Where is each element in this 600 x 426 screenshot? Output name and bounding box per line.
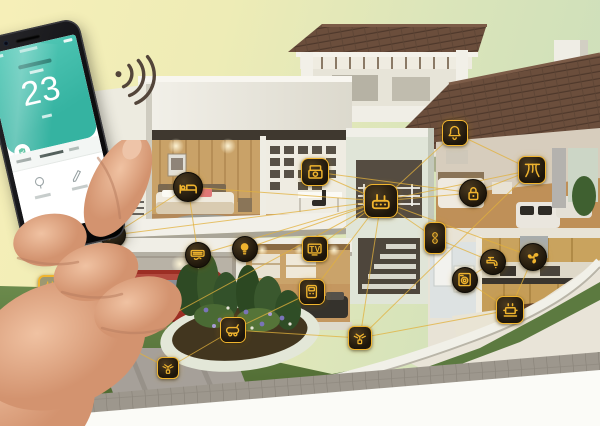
- smart-tv-icon[interactable]: TV: [302, 236, 328, 262]
- smart-curtain-icon[interactable]: [518, 156, 546, 184]
- garden-sprinkler-icon[interactable]: [348, 326, 372, 350]
- thermostat-icon[interactable]: [299, 279, 325, 305]
- smart-tv-label: TV: [309, 245, 320, 254]
- power-sockets-icon[interactable]: [424, 222, 446, 254]
- study-printer-icon[interactable]: [301, 158, 329, 186]
- washing-machine-icon[interactable]: [452, 267, 478, 293]
- smart-faucet-icon[interactable]: [480, 249, 506, 275]
- holding-hand: [0, 140, 270, 426]
- app-title-text: [18, 58, 52, 70]
- door-lock-icon[interactable]: [459, 179, 487, 207]
- temperature-unit: [42, 113, 52, 118]
- battery-icon: [63, 37, 73, 42]
- smart-stove-icon[interactable]: [496, 296, 524, 324]
- smart-home-scene: TV 23: [0, 0, 600, 426]
- control-hub-icon[interactable]: [364, 184, 398, 218]
- ventilation-fan-icon[interactable]: [519, 243, 547, 271]
- phone-front-camera: [3, 40, 9, 46]
- alarm-bell-icon[interactable]: [442, 120, 468, 146]
